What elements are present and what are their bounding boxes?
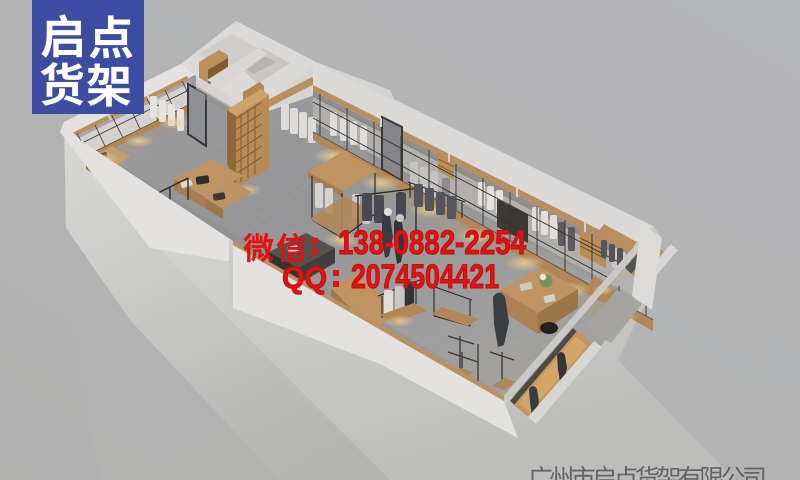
svg-text:QQ: QQ [282, 260, 327, 295]
svg-text:2074504421: 2074504421 [351, 258, 499, 296]
svg-text:138-0882-2254: 138-0882-2254 [338, 224, 526, 262]
